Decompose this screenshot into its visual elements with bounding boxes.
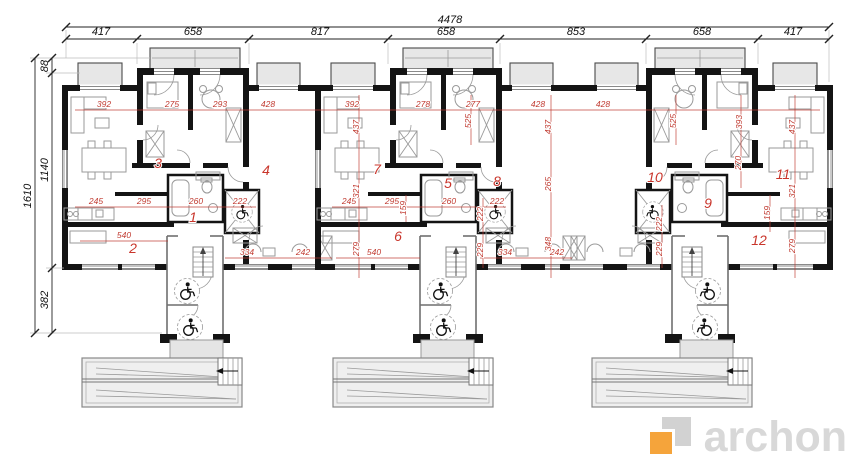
dim-label: 265	[543, 177, 553, 192]
floor-plan-canvas: 392 275 293 428 392 278 277 428 428 245 …	[0, 0, 851, 460]
dim-label: 260	[441, 196, 456, 206]
dim-label: 428	[261, 99, 275, 109]
unit-number: 8	[493, 173, 501, 189]
dim-label: 334	[498, 247, 512, 257]
dim-label: 428	[596, 99, 610, 109]
segment-dimension: 658	[184, 26, 203, 38]
dim-label: 334	[240, 247, 254, 257]
archon-logo-mark-icon	[650, 415, 696, 455]
dim-label: 279	[351, 242, 361, 257]
dim-label: 540	[367, 247, 381, 257]
dim-label: 222	[654, 217, 664, 232]
unit-number: 6	[394, 228, 402, 244]
total-height-dimension: 1610	[22, 183, 34, 208]
dim-label: 392	[345, 99, 359, 109]
archon-logo-text: archon	[704, 421, 847, 455]
unit-number: 11	[776, 166, 791, 182]
dim-label: 321	[351, 184, 361, 198]
unit-number: 12	[751, 232, 767, 248]
archon-logo: archon	[650, 415, 847, 455]
dim-label: 393	[734, 115, 744, 129]
dim-label: 159	[398, 201, 408, 215]
unit-number: 9	[704, 195, 712, 211]
unit-number: 3	[154, 155, 162, 171]
unit-number: 10	[647, 169, 663, 185]
segment-dimension: 853	[567, 26, 586, 38]
dim-label: 321	[787, 184, 797, 198]
dim-label: 525	[463, 114, 473, 128]
dim-label: 525	[668, 114, 678, 128]
dim-label: 260	[188, 196, 203, 206]
dim-label: 229	[475, 243, 485, 258]
total-width-dimension: 4478	[438, 14, 463, 26]
segment-dimension: 658	[693, 26, 712, 38]
logo-orange-square	[650, 429, 675, 454]
dim-label: 277	[465, 99, 480, 109]
unit-number: 5	[444, 175, 452, 191]
ramp-middle	[333, 340, 493, 407]
segment-dimension: 382	[39, 291, 51, 309]
dim-label: 437	[543, 120, 553, 134]
dim-label: 279	[787, 239, 797, 254]
dim-label: 222	[475, 207, 485, 222]
ramp-left	[82, 340, 242, 407]
dim-label: 428	[531, 99, 545, 109]
dim-label: 540	[117, 230, 131, 240]
dim-label: 270	[733, 156, 743, 171]
dim-label: 275	[164, 99, 179, 109]
unit-number: 2	[128, 240, 137, 256]
dim-label: 295	[136, 196, 151, 206]
dim-label: 437	[351, 120, 361, 134]
room-dimension-labels-horizontal: 392 275 293 428 392 278 277 428 428 245 …	[88, 99, 610, 257]
unit-number: 7	[373, 161, 382, 177]
building-section-right	[556, 48, 833, 358]
segment-dimension: 817	[311, 26, 330, 38]
segment-dimension: 658	[437, 26, 456, 38]
dim-label: 245	[88, 196, 103, 206]
dim-label: 222	[232, 196, 247, 206]
floor-plan-svg: 392 275 293 428 392 278 277 428 428 245 …	[0, 0, 851, 460]
segment-dimension: 1140	[39, 157, 51, 182]
dim-label: 437	[787, 120, 797, 134]
unit-number: 1	[189, 209, 197, 225]
dim-label: 222	[489, 196, 504, 206]
dim-label: 293	[212, 99, 227, 109]
dim-label: 229	[654, 242, 664, 257]
segment-dimension: 417	[92, 26, 111, 38]
dim-label: 159	[762, 206, 772, 220]
segment-dimension: 88	[39, 59, 51, 72]
dim-label: 278	[415, 99, 430, 109]
segment-dimension: 417	[784, 26, 803, 38]
ramp-right	[592, 340, 752, 407]
dim-label: 348	[543, 237, 553, 251]
dim-label: 242	[295, 247, 310, 257]
unit-number: 4	[262, 162, 270, 178]
dim-label: 392	[97, 99, 111, 109]
